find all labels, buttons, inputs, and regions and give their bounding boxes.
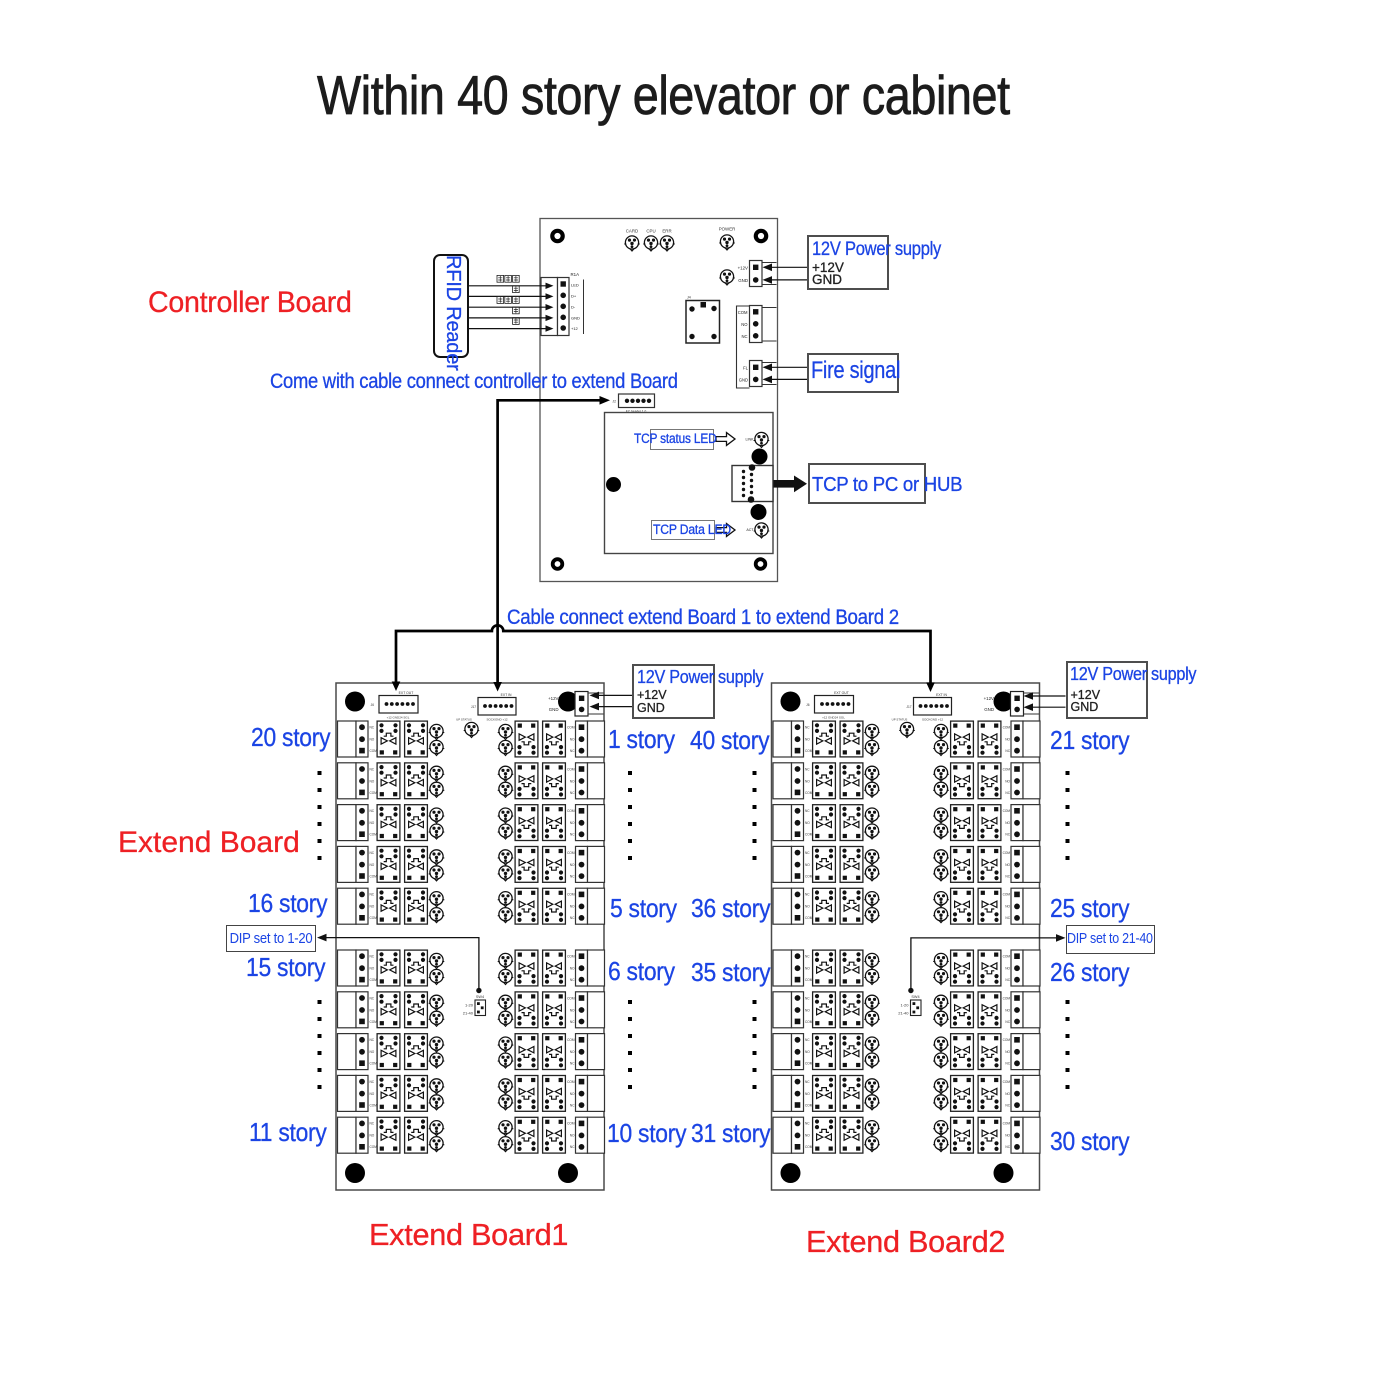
svg-text:CARD: CARD	[626, 229, 638, 234]
svg-text:D-: D-	[571, 305, 576, 310]
svg-text:LED: LED	[571, 283, 579, 288]
svg-text:NO: NO	[741, 322, 748, 327]
svg-text:LINK: LINK	[746, 438, 755, 442]
svg-text:NC: NC	[741, 334, 747, 339]
svg-text:GND: GND	[571, 316, 580, 321]
svg-text:CPU: CPU	[646, 229, 655, 234]
svg-text:GND: GND	[739, 378, 748, 383]
svg-text:J2: J2	[612, 400, 616, 404]
svg-text:POWER: POWER	[719, 227, 736, 232]
svg-text:FL: FL	[743, 365, 749, 370]
svg-text:ERR: ERR	[662, 229, 671, 234]
svg-text:D+: D+	[571, 294, 577, 299]
svg-text:R1A: R1A	[571, 272, 580, 277]
svg-text:J4: J4	[687, 296, 691, 300]
svg-text:GND: GND	[738, 278, 748, 283]
svg-text:COM: COM	[738, 310, 748, 315]
svg-text:+12: +12	[571, 326, 579, 331]
svg-text:ACT: ACT	[746, 528, 754, 532]
svg-text:+12V: +12V	[738, 265, 748, 270]
